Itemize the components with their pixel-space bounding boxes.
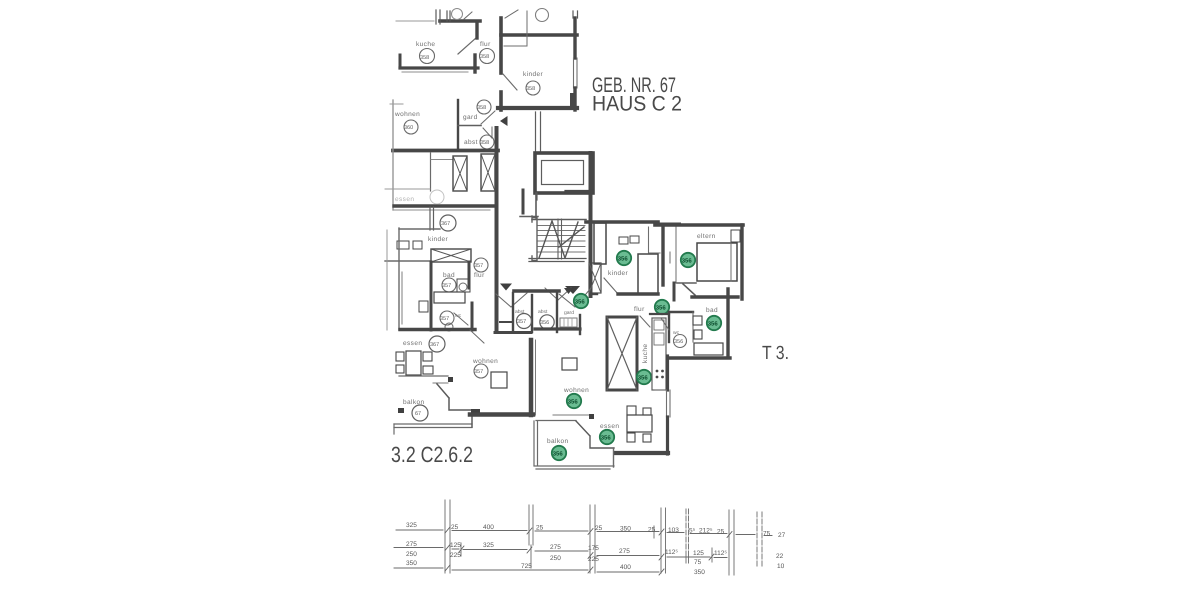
svg-text:essen: essen bbox=[600, 423, 619, 430]
svg-text:356: 356 bbox=[540, 320, 549, 326]
svg-text:356: 356 bbox=[553, 451, 564, 458]
svg-text:356: 356 bbox=[682, 258, 693, 265]
svg-text:27: 27 bbox=[778, 532, 786, 539]
svg-text:25: 25 bbox=[717, 529, 725, 536]
svg-text:350: 350 bbox=[620, 526, 631, 533]
svg-text:357: 357 bbox=[517, 319, 526, 325]
svg-text:75: 75 bbox=[763, 531, 771, 538]
svg-text:wohnen: wohnen bbox=[472, 358, 498, 365]
svg-text:25: 25 bbox=[451, 524, 459, 531]
svg-text:356: 356 bbox=[656, 305, 667, 312]
svg-text:175: 175 bbox=[588, 545, 599, 552]
svg-text:225: 225 bbox=[588, 556, 599, 563]
svg-text:HAUS C 2: HAUS C 2 bbox=[592, 93, 682, 116]
svg-text:360: 360 bbox=[404, 125, 413, 131]
svg-text:350: 350 bbox=[694, 569, 705, 576]
svg-text:250: 250 bbox=[406, 551, 417, 558]
svg-text:67: 67 bbox=[415, 411, 421, 417]
svg-text:25: 25 bbox=[536, 525, 544, 532]
svg-text:10: 10 bbox=[777, 563, 785, 570]
svg-text:356: 356 bbox=[568, 399, 579, 406]
svg-text:225: 225 bbox=[450, 552, 461, 559]
svg-text:212⁵: 212⁵ bbox=[699, 528, 713, 535]
svg-text:125: 125 bbox=[450, 542, 461, 549]
svg-text:gard: gard bbox=[463, 114, 478, 121]
svg-text:350: 350 bbox=[406, 560, 417, 567]
svg-text:357: 357 bbox=[474, 369, 483, 375]
svg-text:kuche: kuche bbox=[416, 41, 435, 48]
svg-text:kinder: kinder bbox=[523, 71, 544, 78]
svg-text:356: 356 bbox=[674, 339, 683, 345]
svg-text:bad: bad bbox=[706, 307, 718, 314]
svg-text:357: 357 bbox=[474, 263, 483, 269]
svg-text:T 3.: T 3. bbox=[762, 343, 789, 364]
svg-text:358: 358 bbox=[480, 140, 489, 146]
svg-text:abst: abst bbox=[464, 139, 478, 146]
svg-text:essen: essen bbox=[403, 340, 422, 347]
svg-text:essen: essen bbox=[395, 196, 414, 203]
svg-text:356: 356 bbox=[708, 321, 719, 328]
svg-text:flur: flur bbox=[474, 272, 485, 279]
svg-text:balkon: balkon bbox=[547, 438, 569, 445]
svg-text:22: 22 bbox=[776, 553, 784, 560]
svg-text:367: 367 bbox=[441, 221, 450, 227]
svg-text:358: 358 bbox=[477, 105, 486, 111]
svg-text:358: 358 bbox=[480, 54, 489, 60]
svg-text:abst: abst bbox=[538, 309, 548, 315]
svg-text:250: 250 bbox=[550, 555, 561, 562]
svg-text:flur: flur bbox=[480, 41, 491, 48]
svg-text:358: 358 bbox=[420, 55, 429, 61]
svg-text:356: 356 bbox=[638, 375, 649, 382]
svg-text:356: 356 bbox=[601, 435, 612, 442]
svg-text:25: 25 bbox=[648, 527, 656, 534]
svg-text:356: 356 bbox=[618, 256, 629, 263]
svg-text:112⁵: 112⁵ bbox=[714, 550, 727, 557]
svg-text:325: 325 bbox=[406, 522, 417, 529]
svg-text:358: 358 bbox=[526, 86, 535, 92]
svg-text:356: 356 bbox=[575, 299, 586, 306]
svg-text:275: 275 bbox=[619, 548, 630, 555]
svg-text:367: 367 bbox=[430, 342, 439, 348]
svg-text:kinder: kinder bbox=[428, 236, 449, 243]
svg-text:357: 357 bbox=[442, 283, 451, 289]
svg-text:25: 25 bbox=[595, 525, 603, 532]
svg-text:3.2 C2.6.2: 3.2 C2.6.2 bbox=[391, 442, 473, 467]
svg-text:kuche: kuche bbox=[642, 344, 649, 363]
svg-text:5⁵: 5⁵ bbox=[689, 528, 696, 535]
svg-text:kinder: kinder bbox=[608, 270, 629, 277]
svg-text:325: 325 bbox=[483, 542, 494, 549]
svg-text:eltern: eltern bbox=[697, 233, 716, 240]
svg-text:275: 275 bbox=[406, 541, 417, 548]
svg-text:125: 125 bbox=[693, 550, 704, 557]
svg-text:400: 400 bbox=[620, 564, 631, 571]
svg-text:wohnen: wohnen bbox=[394, 111, 420, 118]
svg-text:75: 75 bbox=[694, 559, 702, 566]
svg-text:112⁵: 112⁵ bbox=[665, 549, 678, 556]
svg-text:wohnen: wohnen bbox=[563, 387, 589, 394]
svg-text:275: 275 bbox=[550, 544, 561, 551]
svg-text:400: 400 bbox=[483, 524, 494, 531]
svg-text:725: 725 bbox=[521, 563, 532, 570]
svg-text:flur: flur bbox=[634, 306, 645, 313]
svg-text:gard: gard bbox=[564, 310, 574, 316]
svg-text:103: 103 bbox=[668, 527, 679, 534]
svg-text:357: 357 bbox=[440, 316, 449, 322]
